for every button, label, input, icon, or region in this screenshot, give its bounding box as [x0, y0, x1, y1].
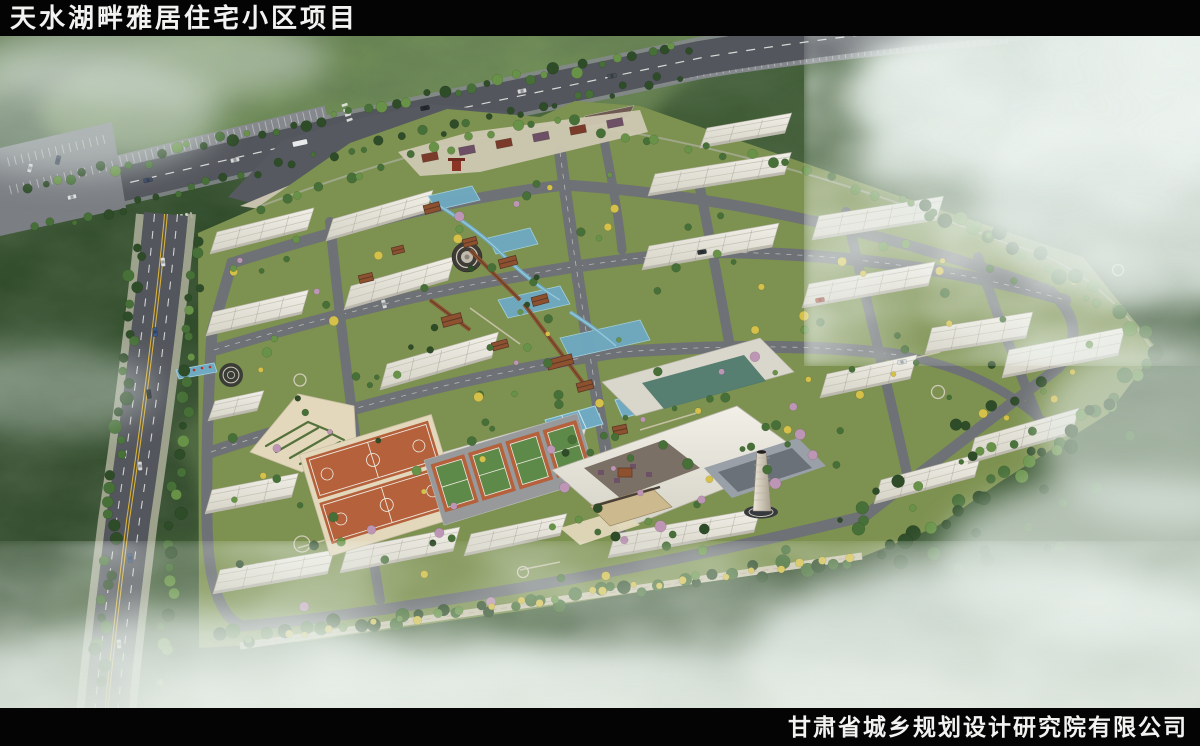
tree: [392, 99, 401, 108]
tree: [659, 440, 668, 449]
tree: [977, 492, 990, 505]
tree: [986, 474, 995, 483]
credit-bar: 甘肃省城乡规划设计研究院有限公司: [0, 708, 1200, 746]
tree: [1015, 470, 1028, 483]
tree: [595, 399, 604, 408]
tree: [259, 268, 264, 273]
tree: [453, 234, 462, 243]
tree: [412, 466, 422, 476]
car: [152, 327, 157, 336]
tree: [649, 47, 658, 56]
tree: [682, 458, 693, 469]
tree: [968, 451, 978, 461]
tree: [655, 521, 667, 533]
tree: [273, 129, 280, 136]
tree: [619, 82, 626, 89]
company-name: 甘肃省城乡规划设计研究院有限公司: [788, 715, 1188, 740]
tree: [596, 235, 602, 241]
tree: [953, 505, 964, 516]
tree: [526, 75, 536, 85]
tree: [302, 409, 309, 416]
tree: [947, 395, 952, 400]
tree: [645, 81, 654, 90]
tree: [367, 382, 373, 388]
tree: [979, 409, 988, 418]
tree: [192, 247, 203, 258]
tree: [178, 365, 190, 377]
tree: [297, 502, 303, 508]
car-glass: [900, 360, 904, 364]
tree: [512, 70, 521, 79]
tree: [104, 209, 114, 219]
tree: [164, 521, 173, 530]
tree: [552, 103, 557, 108]
tree: [672, 263, 681, 272]
tree: [188, 184, 195, 191]
tree: [901, 345, 909, 353]
tree: [202, 177, 210, 185]
tree: [740, 446, 746, 452]
tree: [1041, 389, 1047, 395]
tree: [562, 449, 570, 457]
tree: [771, 420, 781, 430]
tree: [555, 117, 561, 123]
tree: [623, 415, 628, 420]
tree: [487, 131, 494, 138]
tree: [219, 173, 228, 182]
tree: [66, 175, 76, 185]
tree: [706, 476, 713, 483]
tree: [611, 433, 619, 441]
tree: [373, 136, 383, 146]
tree: [467, 84, 477, 94]
tree: [961, 421, 970, 430]
tree: [717, 213, 724, 220]
tree: [193, 237, 203, 247]
tree: [554, 400, 563, 409]
tree: [616, 337, 621, 342]
tree: [669, 531, 676, 538]
tree: [719, 153, 726, 160]
tree: [571, 67, 583, 79]
chinese-gate: [452, 160, 461, 171]
tree: [102, 497, 113, 508]
tree: [258, 131, 266, 139]
tree: [654, 287, 661, 294]
tree: [175, 191, 181, 197]
tree: [447, 147, 455, 155]
tree: [610, 205, 618, 213]
tree: [1028, 427, 1037, 436]
tree: [645, 518, 652, 525]
tree: [781, 159, 788, 166]
tree: [450, 119, 459, 128]
car-glass: [700, 250, 703, 254]
tree: [117, 450, 126, 459]
tree: [175, 507, 188, 520]
tree: [314, 182, 323, 191]
tree: [132, 282, 143, 293]
tree: [768, 157, 779, 168]
tree: [543, 358, 552, 367]
tree: [182, 325, 191, 334]
tree: [549, 524, 556, 531]
tree: [228, 433, 237, 442]
tree: [352, 372, 360, 380]
tree: [108, 519, 120, 531]
tree: [196, 284, 204, 292]
tree: [376, 101, 387, 112]
tree: [429, 142, 439, 152]
tree: [575, 92, 582, 99]
car: [160, 257, 165, 266]
tree: [175, 449, 186, 460]
tree: [482, 419, 489, 426]
tree: [484, 80, 491, 87]
tree: [568, 435, 577, 444]
title-bar: 天水湖畔雅居住宅小区项目: [0, 0, 1200, 36]
tree: [133, 244, 141, 252]
tree: [262, 348, 272, 358]
tree: [507, 107, 514, 114]
tree: [421, 489, 426, 494]
tree: [456, 225, 464, 233]
tree: [892, 475, 905, 488]
tree: [103, 509, 113, 519]
tree: [1010, 397, 1019, 406]
tree: [512, 391, 518, 397]
tree: [273, 444, 281, 452]
tree: [188, 353, 195, 360]
tree: [123, 312, 133, 322]
tree: [763, 465, 772, 474]
tree: [607, 172, 612, 177]
tree: [575, 516, 582, 523]
tree: [816, 318, 824, 326]
tree: [998, 466, 1010, 478]
tree: [750, 352, 760, 362]
tree: [153, 194, 160, 201]
tree: [293, 191, 301, 199]
tree: [613, 54, 622, 63]
tree: [672, 406, 677, 411]
tree: [611, 466, 616, 471]
tree: [492, 75, 503, 86]
tree: [72, 220, 77, 225]
tree: [171, 489, 182, 500]
tree: [545, 331, 550, 336]
tree: [789, 403, 797, 411]
car-glass: [423, 106, 427, 110]
tree: [271, 335, 278, 342]
tree: [950, 419, 962, 431]
tree: [837, 517, 842, 522]
tree: [849, 366, 855, 372]
gate-lintel: [448, 158, 465, 161]
car-glass: [818, 298, 821, 302]
tree: [547, 445, 556, 454]
tree: [125, 300, 134, 309]
tree: [610, 93, 615, 98]
tree: [184, 407, 195, 418]
tree: [177, 468, 186, 477]
tree: [524, 302, 530, 308]
roof-pavilion: [618, 468, 632, 477]
tree: [872, 488, 879, 495]
tree: [230, 265, 237, 272]
tree: [942, 520, 951, 529]
tree: [331, 112, 337, 118]
tree: [398, 132, 406, 140]
tree: [569, 115, 580, 126]
tree: [464, 132, 472, 140]
tree: [713, 250, 721, 258]
tree: [134, 196, 141, 203]
tree: [424, 89, 431, 96]
tree: [533, 180, 540, 187]
tree: [808, 450, 818, 460]
tree: [408, 344, 413, 349]
mist-texture: [840, 36, 1200, 336]
tree: [721, 393, 731, 403]
tree: [104, 482, 116, 494]
gate-flag: [201, 367, 204, 370]
tree: [376, 438, 382, 444]
tree: [440, 86, 452, 98]
tree: [653, 367, 662, 376]
tree: [327, 429, 332, 434]
tree: [600, 432, 607, 439]
tree: [668, 43, 675, 50]
tree: [129, 336, 139, 346]
tree: [186, 271, 195, 280]
tree: [799, 311, 809, 321]
tree: [534, 275, 540, 281]
tree: [748, 149, 758, 159]
tree: [237, 172, 244, 179]
aerial-rendering: [0, 0, 1200, 746]
tree: [785, 441, 791, 447]
tree: [758, 284, 764, 290]
tree: [374, 375, 379, 380]
tree: [731, 259, 736, 264]
tree: [407, 150, 415, 158]
tree: [489, 426, 495, 432]
roof-furniture: [614, 478, 620, 483]
roof-furniture: [646, 472, 652, 477]
tree: [479, 456, 485, 462]
tree: [295, 395, 301, 401]
tree: [258, 367, 263, 372]
tree: [345, 107, 352, 114]
tree: [585, 90, 593, 98]
tree: [801, 326, 809, 334]
tree: [1086, 341, 1093, 348]
tree: [986, 442, 996, 452]
tree: [698, 496, 706, 504]
tree: [257, 206, 266, 215]
gate-flag: [209, 366, 212, 369]
tree: [467, 436, 476, 445]
tree: [695, 408, 701, 414]
tree: [621, 133, 630, 142]
tree: [227, 134, 239, 146]
tree: [1004, 415, 1010, 421]
tree: [284, 256, 290, 262]
tree: [513, 201, 519, 207]
tree: [706, 395, 713, 402]
tree: [393, 371, 401, 379]
tree: [913, 360, 919, 366]
tree: [856, 391, 864, 399]
tree: [105, 470, 115, 480]
tree: [290, 122, 297, 129]
tree: [311, 152, 316, 157]
tree: [184, 332, 192, 340]
tree: [891, 372, 896, 377]
tree: [330, 152, 339, 161]
tree: [120, 208, 127, 215]
tree: [427, 346, 434, 353]
tree: [544, 314, 553, 323]
tree: [587, 449, 594, 456]
tree: [1036, 376, 1047, 387]
tree: [314, 288, 320, 294]
tree: [54, 176, 63, 185]
tree: [377, 164, 384, 171]
car-glass: [138, 464, 142, 467]
tree: [773, 370, 778, 375]
tree: [356, 173, 363, 180]
tree: [329, 316, 339, 326]
tree: [179, 422, 186, 429]
tree: [522, 192, 531, 201]
tree: [640, 417, 645, 422]
tree: [329, 512, 339, 522]
tree: [367, 525, 376, 534]
chimney-opening: [757, 450, 766, 454]
tree: [31, 222, 39, 230]
tree: [237, 258, 243, 264]
tree: [421, 284, 429, 292]
tree: [435, 528, 445, 538]
tree: [454, 211, 464, 221]
tree: [541, 71, 548, 78]
tree: [685, 224, 692, 231]
tree: [488, 263, 497, 272]
tree: [784, 426, 792, 434]
tree: [364, 104, 373, 113]
tree: [528, 121, 535, 128]
tree: [455, 90, 461, 96]
tree: [293, 236, 300, 243]
tree: [637, 490, 643, 496]
tree: [347, 173, 357, 183]
tree: [913, 481, 923, 491]
tree: [231, 497, 237, 503]
tree: [762, 423, 770, 431]
tree: [137, 252, 146, 261]
tree: [677, 76, 683, 82]
tree: [254, 171, 261, 178]
tree: [986, 400, 997, 411]
tree: [518, 309, 523, 314]
tree: [1010, 440, 1018, 448]
tree: [959, 459, 964, 464]
tree: [317, 118, 327, 128]
tree: [215, 132, 225, 142]
tree: [274, 158, 283, 167]
presentation-board: 天水湖畔雅居住宅小区项目 甘肃省城乡规划设计研究院有限公司: [0, 0, 1200, 746]
tree: [462, 119, 470, 127]
tree: [685, 146, 692, 153]
tree: [288, 161, 296, 169]
tree: [43, 181, 49, 187]
tree: [182, 377, 193, 388]
tree: [185, 306, 194, 315]
tree: [401, 98, 411, 108]
tree: [273, 475, 281, 483]
tree: [244, 130, 250, 136]
tree: [653, 73, 661, 81]
tree: [577, 228, 586, 237]
tree: [751, 326, 759, 334]
tree: [514, 360, 519, 365]
tree: [593, 504, 602, 513]
car-glass: [161, 260, 165, 263]
roof-furniture: [598, 470, 604, 475]
tree: [46, 218, 54, 226]
tree: [806, 377, 812, 383]
tree: [604, 223, 612, 231]
tree: [802, 166, 812, 176]
tree: [441, 131, 447, 137]
tree: [84, 213, 93, 222]
tree: [554, 390, 564, 400]
tree: [374, 251, 383, 260]
car: [137, 461, 142, 470]
tree: [361, 147, 367, 153]
tree: [474, 392, 484, 402]
tree: [177, 435, 189, 447]
tree: [699, 524, 709, 534]
tree: [988, 361, 996, 369]
tree: [283, 194, 293, 204]
tree: [117, 436, 125, 444]
tree: [547, 185, 553, 191]
tree: [627, 51, 637, 61]
tree: [486, 113, 492, 119]
tree: [578, 59, 588, 69]
tree: [547, 62, 559, 74]
tree: [418, 125, 428, 135]
tree: [856, 501, 869, 514]
tree: [23, 184, 33, 194]
tree: [301, 121, 312, 132]
tree: [596, 129, 606, 139]
tree: [518, 112, 524, 118]
tree: [349, 148, 355, 154]
project-title: 天水湖畔雅居住宅小区项目: [10, 4, 358, 33]
tree: [431, 324, 438, 331]
tree: [450, 503, 457, 510]
car-glass: [153, 330, 157, 333]
tree: [322, 301, 330, 309]
tree: [185, 294, 192, 301]
tree: [828, 172, 836, 180]
tree: [539, 102, 548, 111]
tree: [122, 270, 134, 282]
